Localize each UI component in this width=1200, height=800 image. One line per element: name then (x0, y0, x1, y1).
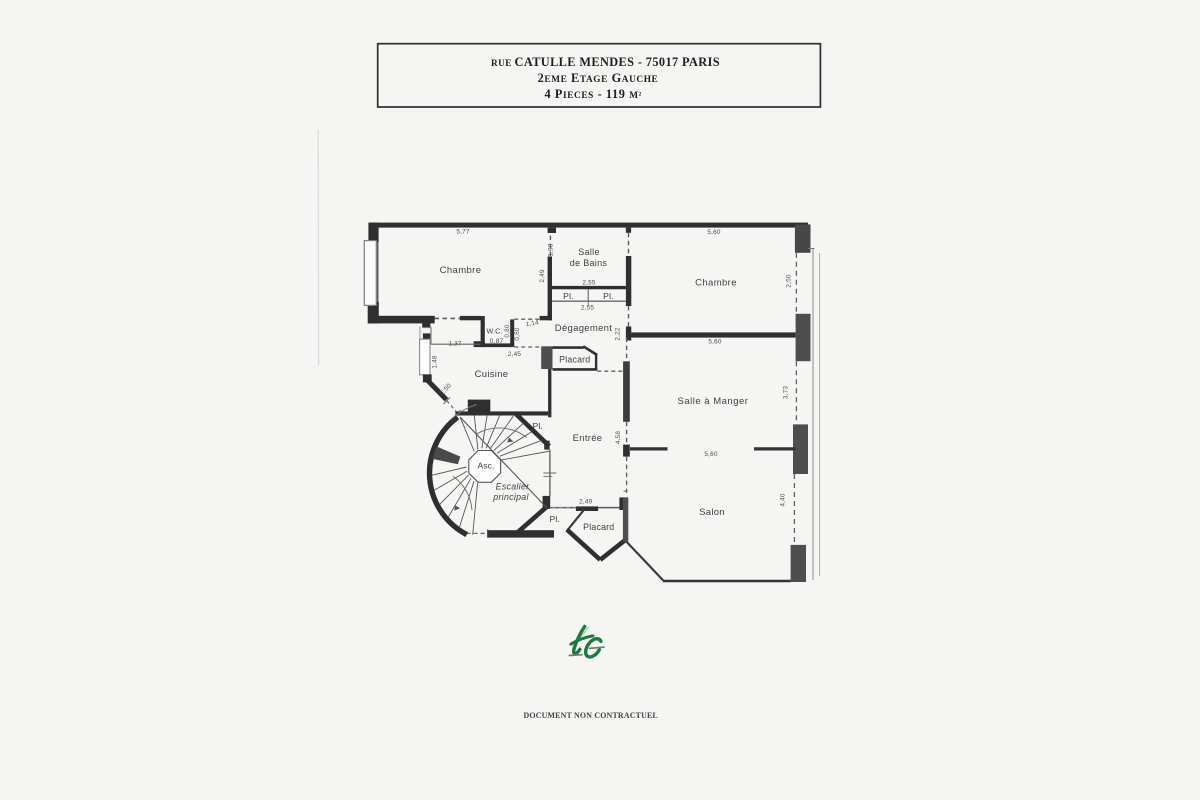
svg-text:5,77: 5,77 (456, 228, 469, 235)
svg-text:0,80: 0,80 (504, 324, 511, 337)
svg-text:0,87: 0,87 (490, 338, 504, 345)
svg-text:Asc.: Asc. (477, 460, 494, 470)
svg-text:Salle à Manger: Salle à Manger (678, 396, 749, 407)
svg-text:Placard: Placard (559, 355, 590, 365)
svg-text:2,22: 2,22 (615, 327, 622, 340)
svg-text:0,60: 0,60 (514, 327, 521, 340)
svg-text:Salon: Salon (699, 507, 725, 518)
svg-text:5,60: 5,60 (704, 451, 717, 458)
svg-text:4,40: 4,40 (780, 493, 787, 506)
svg-text:2,55: 2,55 (582, 280, 595, 287)
svg-text:3,73: 3,73 (783, 386, 790, 399)
svg-text:2,45: 2,45 (508, 351, 521, 358)
svg-text:1,93: 1,93 (547, 243, 554, 256)
svg-text:Pl.: Pl. (549, 514, 560, 524)
svg-text:2,50: 2,50 (786, 274, 793, 287)
svg-text:W.C.: W.C. (487, 326, 503, 335)
svg-text:2,55: 2,55 (581, 304, 594, 311)
svg-text:Entrée: Entrée (573, 433, 603, 444)
svg-text:principal: principal (492, 492, 529, 502)
svg-text:1,50: 1,50 (439, 382, 453, 397)
svg-text:RUE CATULLE MENDES - 75017 PAR: RUE CATULLE MENDES - 75017 PARIS (491, 55, 720, 69)
svg-text:Pl.: Pl. (603, 291, 614, 301)
svg-text:4,58: 4,58 (615, 431, 622, 444)
svg-text:2,49: 2,49 (579, 498, 592, 505)
svg-text:2,49: 2,49 (539, 269, 546, 282)
svg-text:Pl.: Pl. (532, 421, 543, 431)
svg-text:DOCUMENT NON CONTRACTUEL: DOCUMENT NON CONTRACTUEL (523, 711, 657, 720)
svg-text:Chambre: Chambre (440, 265, 482, 276)
svg-text:1,37: 1,37 (448, 340, 461, 347)
svg-text:Placard: Placard (583, 522, 614, 532)
svg-text:1,48: 1,48 (431, 355, 438, 368)
svg-text:5,60: 5,60 (708, 338, 721, 345)
svg-text:Salle: Salle (578, 247, 600, 257)
svg-text:Pl.: Pl. (563, 291, 574, 301)
svg-text:Escalier: Escalier (496, 482, 530, 492)
svg-text:Chambre: Chambre (695, 277, 737, 288)
svg-text:1,14: 1,14 (525, 319, 539, 328)
svg-text:5,60: 5,60 (707, 229, 720, 236)
svg-text:Dégagement: Dégagement (555, 323, 612, 334)
svg-text:2EME ETAGE GAUCHE: 2EME ETAGE GAUCHE (538, 71, 659, 85)
svg-text:Cuisine: Cuisine (475, 369, 509, 380)
svg-text:4 PIECES - 119 M²: 4 PIECES - 119 M² (544, 87, 642, 101)
svg-text:de Bains: de Bains (570, 258, 608, 268)
